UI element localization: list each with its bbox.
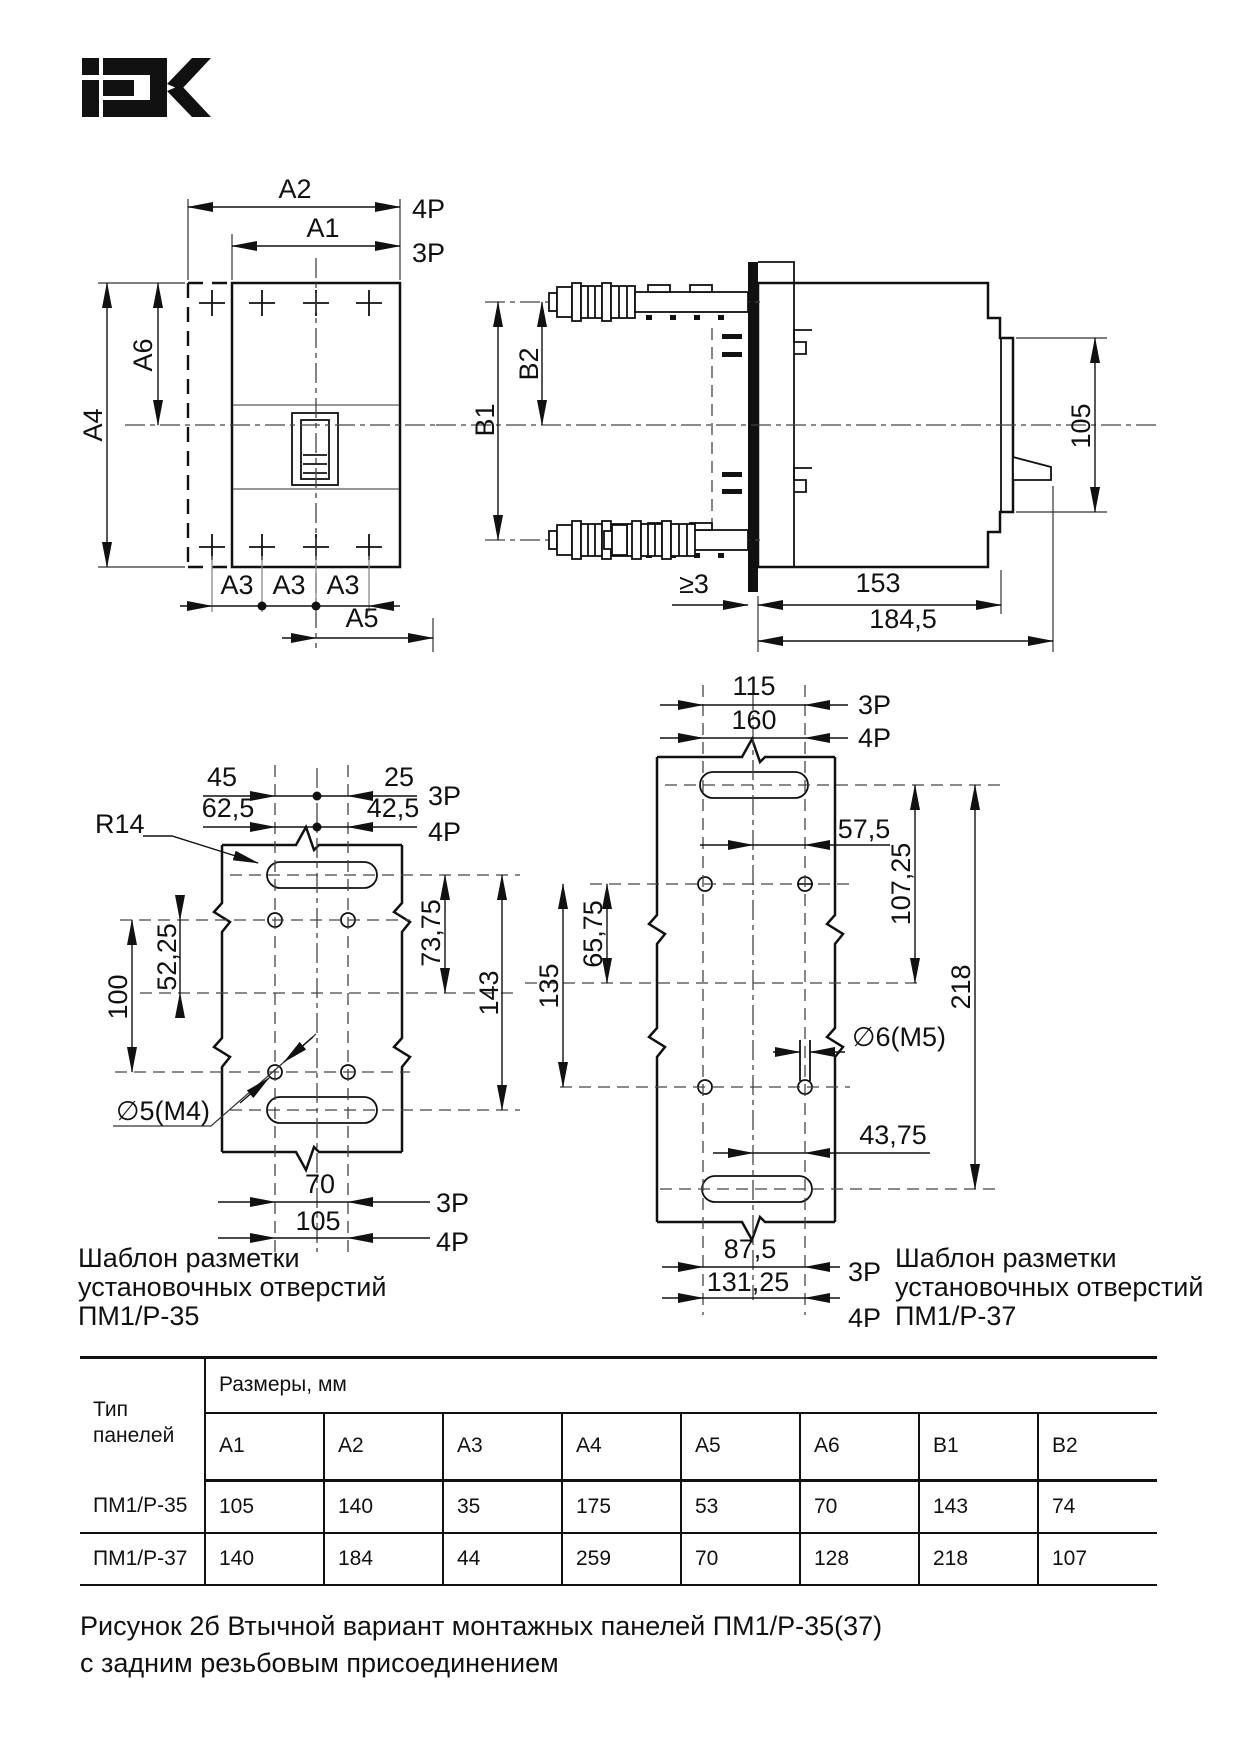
catalog-page: A2 4P A1 3P A4 A6 A3 A3 A3 A5 [0,0,1238,1748]
column-header-a2: A2 [324,1413,443,1481]
terminal-crosses-top [199,290,382,316]
dim-label-87-5: 87,5 [724,1234,777,1264]
table-column-header-row: A1 A2 A3 A4 A5 A6 B1 B2 [80,1413,1157,1481]
toggle-handle-outline [292,413,338,485]
template-pm1r37-drawing: 115 3P 160 4P 57,5 107,25 218 65,75 135 … [525,671,1203,1333]
cell-value: 44 [443,1533,562,1585]
pole-label-3p: 3P [428,781,461,811]
terminal-crosses-bottom [199,534,382,560]
column-header-a1: A1 [205,1413,324,1481]
table-row-pm1r35: ПМ1/Р-35 105 140 35 175 53 70 143 74 [80,1481,1157,1533]
dim-label-135: 135 [534,963,564,1008]
dim-label-a4: A4 [78,408,108,441]
figure-caption: Рисунок 2б Втычной вариант монтажных пан… [80,1608,882,1682]
template35-caption-line3: ПМ1/Р-35 [78,1301,199,1331]
cell-value: 107 [1038,1533,1157,1585]
dim-label-70: 70 [305,1169,335,1199]
table-header-type-line2: панелей [93,1423,204,1449]
column-header-b1: B1 [919,1413,1038,1481]
cell-value: 105 [205,1481,324,1533]
figure-caption-line1: Рисунок 2б Втычной вариант монтажных пан… [80,1608,882,1645]
dim-label-73-75: 73,75 [416,899,446,967]
column-header-a4: A4 [562,1413,681,1481]
template35-caption-line2: установочных отверстий [78,1272,386,1302]
mounting-panel [748,262,758,592]
pole-label-4p: 4P [858,723,891,753]
cell-value: 74 [1038,1481,1157,1533]
cell-value: 175 [562,1481,681,1533]
pole-label-4p: 4P [412,194,445,224]
dim-label-52-25: 52,25 [152,923,182,991]
cell-value: 143 [919,1481,1038,1533]
cell-value: 140 [324,1481,443,1533]
dim-label-153: 153 [855,568,900,598]
dim-label-43-75: 43,75 [859,1120,927,1150]
threaded-stud-second [604,521,695,559]
dim-label-a2: A2 [278,174,311,204]
row-name: ПМ1/Р-37 [80,1533,205,1585]
template35-plate-outline [214,827,410,1170]
dim-label-a1: A1 [306,213,339,243]
dim-label-a6: A6 [128,338,158,371]
hole-label-d6m5: ∅6(M5) [852,1022,946,1052]
dim-label-143: 143 [474,970,504,1015]
dim-label-65-75: 65,75 [578,900,608,968]
template-pm1r35-drawing: 45 25 3P 62,5 42,5 4P R14 52,25 100 73,7… [78,762,520,1331]
mounting-slot [267,1097,377,1123]
front-view-drawing: A2 4P A1 3P A4 A6 A3 A3 A3 A5 [78,174,445,652]
template35-caption-line1: Шаблон разметки [78,1243,300,1273]
dim-label-160: 160 [731,705,776,735]
dim-label-gap3: ≥3 [679,569,709,599]
pole-label-3p: 3P [848,1257,881,1287]
table-header-type-line1: Тип [93,1397,204,1423]
hole-label-d5m4: ∅5(M4) [116,1096,210,1126]
pole-label-4p: 4P [428,817,461,847]
template37-caption-line3: ПМ1/Р-37 [895,1301,1016,1331]
pole-label-3p: 3P [858,690,891,720]
dim-label-131-25: 131,25 [707,1267,790,1297]
radius-label-r14: R14 [95,809,145,839]
dim-label-100: 100 [103,974,133,1019]
pole-label-3p: 3P [436,1188,469,1218]
cell-value: 70 [681,1533,800,1585]
side-toggle-handle [1013,457,1051,480]
panel-dimensions-table: Тип панелей Размеры, мм A1 A2 A3 A4 A5 A… [80,1356,1157,1586]
mounting-slot [700,772,808,798]
column-header-b2: B2 [1038,1413,1157,1481]
dim-label-62-5: 62,5 [202,793,255,823]
template37-plate-outline [649,739,843,1240]
cell-value: 259 [562,1533,681,1585]
dim-label-a3: A3 [272,570,305,600]
dim-label-a3: A3 [220,570,253,600]
dim-label-b1: B1 [470,403,500,436]
pole-label-4p: 4P [848,1303,881,1333]
dim-label-a5: A5 [345,603,378,633]
dim-label-57-5: 57,5 [838,814,891,844]
dim-label-218: 218 [946,964,976,1009]
cell-value: 35 [443,1481,562,1533]
dim-label-107-25: 107,25 [886,843,916,926]
table-header-sizes: Размеры, мм [205,1358,1157,1413]
dim-label-25: 25 [384,762,414,792]
table-header-type: Тип панелей [80,1358,205,1481]
iek-logo [82,58,211,117]
dim-label-b2: B2 [514,347,544,380]
dim-label-45: 45 [207,762,237,792]
column-header-a6: A6 [800,1413,919,1481]
table-row-pm1r37: ПМ1/Р-37 140 184 44 259 70 128 218 107 [80,1533,1157,1585]
column-header-a3: A3 [443,1413,562,1481]
cell-value: 128 [800,1533,919,1585]
template37-caption-line1: Шаблон разметки [895,1243,1117,1273]
cell-value: 53 [681,1481,800,1533]
pole-label-3p: 3P [412,238,445,268]
row-name: ПМ1/Р-35 [80,1481,205,1533]
cell-value: 218 [919,1533,1038,1585]
pole-label-4p: 4P [436,1227,469,1257]
mounting-slot [267,862,377,888]
dim-label-184-5: 184,5 [869,604,937,634]
dim-label-a3: A3 [326,570,359,600]
cell-value: 140 [205,1533,324,1585]
cell-value: 184 [324,1533,443,1585]
side-view-drawing: B1 B2 105 ≥3 153 184,5 [436,262,1160,652]
column-header-a5: A5 [681,1413,800,1481]
template37-caption-line2: установочных отверстий [895,1272,1203,1302]
dim-label-115: 115 [732,671,775,701]
threaded-stud [549,283,748,321]
dim-label-42-5: 42,5 [367,793,420,823]
figure-caption-line2: с задним резьбовым присоединением [80,1645,882,1682]
cell-value: 70 [800,1481,919,1533]
dim-label-105: 105 [295,1206,340,1236]
dim-label-105: 105 [1066,403,1096,448]
